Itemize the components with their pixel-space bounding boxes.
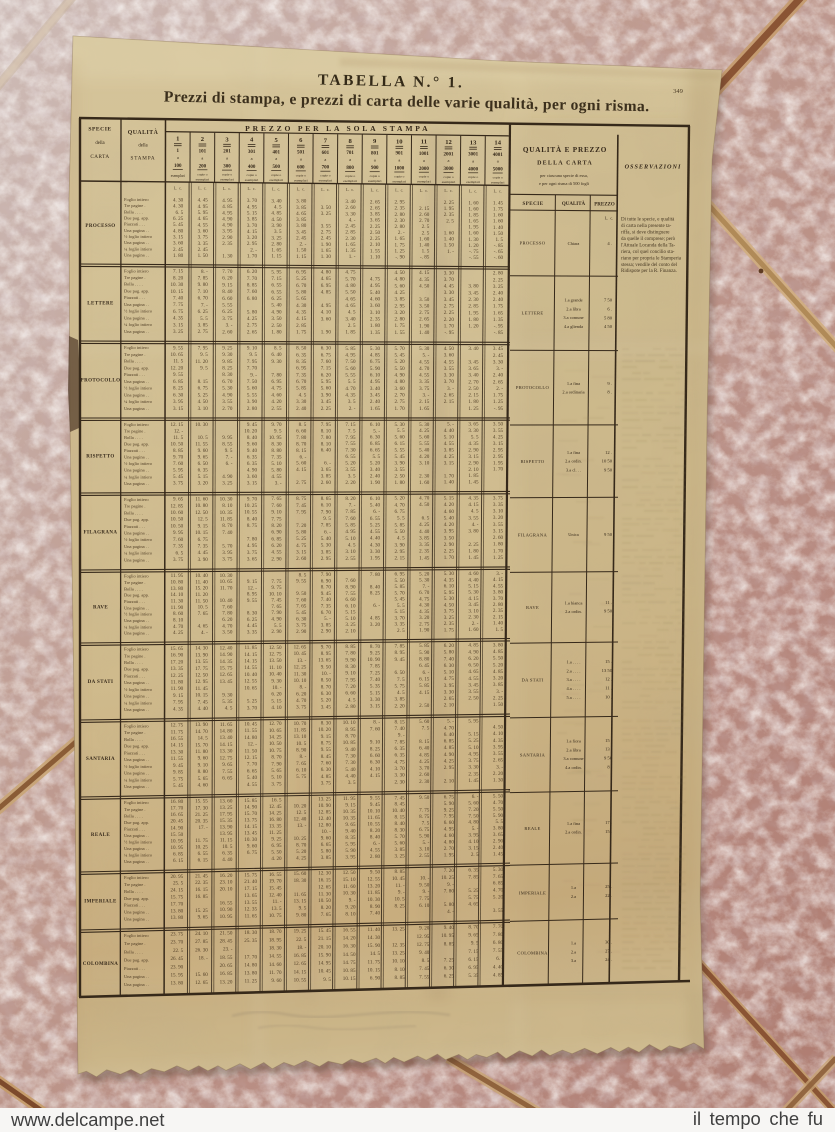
svg-text:8. 15: 8. 15 <box>296 448 307 454</box>
svg-text:6. 90: 6. 90 <box>271 530 282 536</box>
svg-text:4. 25: 4. 25 <box>419 428 430 434</box>
svg-text:4. -: 4. - <box>447 909 454 915</box>
svg-text:5. 55: 5. 55 <box>222 303 233 309</box>
svg-text:4. 80: 4. 80 <box>395 277 406 283</box>
svg-text:4. 50: 4. 50 <box>444 602 455 608</box>
svg-text:13. 80: 13. 80 <box>170 908 183 914</box>
svg-text:2. 55: 2. 55 <box>345 556 356 562</box>
svg-text:9. 20: 9. 20 <box>419 926 430 932</box>
svg-text:15. 75: 15. 75 <box>170 895 183 901</box>
svg-text:16. 15: 16. 15 <box>318 878 331 884</box>
svg-text:3. 10: 3. 10 <box>419 846 430 852</box>
svg-text:3. -: 3. - <box>423 393 430 399</box>
svg-text:3. 80: 3. 80 <box>468 284 479 290</box>
svg-text:1. 50: 1. 50 <box>444 243 455 249</box>
svg-text:5. 60: 5. 60 <box>419 435 430 441</box>
svg-text:7. 80: 7. 80 <box>321 435 332 441</box>
svg-text:6. 75: 6. 75 <box>395 509 406 515</box>
svg-text:4. 85: 4. 85 <box>321 290 332 296</box>
svg-text:10. 40: 10. 40 <box>195 573 208 579</box>
svg-text:5. 80: 5. 80 <box>444 650 455 656</box>
svg-text:a: a <box>398 158 400 163</box>
svg-text:14. 60: 14. 60 <box>269 962 282 968</box>
svg-text:3. 15: 3. 15 <box>493 441 504 447</box>
svg-text:3. 10: 3. 10 <box>345 549 356 555</box>
svg-text:4. 70: 4. 70 <box>173 624 184 630</box>
svg-text:14. 10: 14. 10 <box>170 592 183 598</box>
svg-text:Due pag. app.: Due pag. app. <box>124 289 149 294</box>
svg-text:PREZZO: PREZZO <box>594 202 615 207</box>
svg-text:4. 80: 4. 80 <box>468 820 479 826</box>
svg-text:5. 65: 5. 65 <box>296 296 307 302</box>
svg-text:22. 5: 22. 5 <box>296 937 307 943</box>
svg-text:4. 90: 4. 90 <box>468 649 479 655</box>
svg-text:5. 40: 5. 40 <box>321 536 332 542</box>
svg-text:600: 600 <box>297 165 305 170</box>
svg-text:3.a comune: 3.a comune <box>563 315 583 320</box>
svg-text:5. 40: 5. 40 <box>444 515 455 521</box>
svg-text:4. 40: 4. 40 <box>345 773 356 779</box>
svg-text:1. 80: 1. 80 <box>468 399 479 405</box>
svg-text:Bolla . . . .: Bolla . . . . <box>124 359 143 364</box>
svg-text:1. 80: 1. 80 <box>468 548 479 554</box>
svg-text:5. 10: 5. 10 <box>271 775 282 781</box>
svg-text:6. 65: 6. 65 <box>222 776 233 782</box>
svg-text:Una pagina . .: Una pagina . . <box>124 558 149 563</box>
svg-text:5. 60: 5. 60 <box>321 386 332 392</box>
svg-text:10. 50: 10. 50 <box>170 524 183 530</box>
svg-text:½ foglio intiero: ½ foglio intiero <box>124 764 153 769</box>
svg-text:7. 40: 7. 40 <box>321 597 332 603</box>
svg-text:copie o: copie o <box>320 174 330 178</box>
svg-text:2. 25: 2. 25 <box>444 310 455 316</box>
svg-text:3. 55: 3. 55 <box>321 223 332 229</box>
svg-text:2. 5: 2. 5 <box>422 224 430 230</box>
svg-text:2. 55: 2. 55 <box>271 406 282 412</box>
svg-text:6. 55: 6. 55 <box>198 851 209 857</box>
svg-text:Una pagina . .: Una pagina . . <box>124 253 149 258</box>
svg-text:Due pag. app.: Due pag. app. <box>124 593 149 598</box>
svg-text:12. 35: 12. 35 <box>244 907 257 913</box>
svg-text:10. 10: 10. 10 <box>367 809 380 815</box>
svg-text:9. 40: 9. 40 <box>345 829 356 835</box>
svg-text:11. -: 11. - <box>396 883 405 889</box>
svg-text:5. 60: 5. 60 <box>395 283 406 289</box>
svg-text:1. 80: 1. 80 <box>370 323 381 329</box>
svg-text:4. 40: 4. 40 <box>419 529 430 535</box>
svg-text:4. 95: 4. 95 <box>444 827 455 833</box>
svg-text:16. 55: 16. 55 <box>269 872 282 878</box>
svg-text:-. 85: -. 85 <box>420 255 430 261</box>
svg-text:3. 30: 3. 30 <box>444 270 455 276</box>
svg-text:7. 35: 7. 35 <box>321 604 332 610</box>
svg-text:12. 15: 12. 15 <box>170 422 183 428</box>
svg-text:3. 70: 3. 70 <box>395 766 406 772</box>
svg-text:3. 80: 3. 80 <box>468 529 479 535</box>
svg-text:3. 5: 3. 5 <box>274 229 282 235</box>
svg-text:esemplari: esemplari <box>319 179 333 183</box>
svg-text:Due pag. app.: Due pag. app. <box>124 667 149 672</box>
svg-text:3. 15: 3. 15 <box>468 845 479 851</box>
svg-text:8 .: 8 . <box>607 390 612 395</box>
svg-text:Una pagina . .: Una pagina . . <box>124 228 149 233</box>
svg-text:il tempo che fu: il tempo che fu <box>693 1108 823 1129</box>
svg-text:14. 75: 14. 75 <box>343 960 356 966</box>
svg-text:1. 95: 1. 95 <box>468 225 479 231</box>
svg-text:3. 70: 3. 70 <box>444 277 455 283</box>
svg-text:1. 35: 1. 35 <box>370 330 381 336</box>
svg-text:5. 45: 5. 45 <box>296 610 307 616</box>
svg-text:5. 55: 5. 55 <box>395 448 406 454</box>
svg-text:4. 75: 4. 75 <box>345 270 356 276</box>
svg-text:15. 90: 15. 90 <box>367 943 380 949</box>
svg-text:4. 75: 4. 75 <box>271 386 282 392</box>
svg-text:1. 45: 1. 45 <box>493 201 504 207</box>
svg-text:6. -: 6. - <box>373 603 380 609</box>
svg-text:5. 15: 5. 15 <box>444 496 455 502</box>
svg-text:10. 35: 10. 35 <box>220 510 233 516</box>
svg-text:1000: 1000 <box>394 167 405 172</box>
svg-text:9. 50: 9. 50 <box>296 591 307 597</box>
svg-text:2. 90: 2. 90 <box>444 542 455 548</box>
svg-text:8. 70: 8. 70 <box>468 925 479 931</box>
svg-text:15. 60: 15. 60 <box>195 972 208 978</box>
svg-text:11. 70: 11. 70 <box>220 586 233 592</box>
svg-text:8. 15: 8. 15 <box>198 379 209 385</box>
svg-text:7. 85: 7. 85 <box>468 874 479 880</box>
svg-text:1. 95: 1. 95 <box>444 852 455 858</box>
svg-text:6. 30: 6. 30 <box>321 346 332 352</box>
svg-text:4. 65: 4. 65 <box>468 669 479 675</box>
svg-text:9. 30: 9. 30 <box>222 692 233 698</box>
svg-text:10. 20: 10. 20 <box>244 428 257 434</box>
svg-text:2. 40: 2. 40 <box>370 399 381 405</box>
svg-text:3. 70: 3. 70 <box>395 615 406 621</box>
svg-text:701: 701 <box>346 151 354 156</box>
svg-text:1. 30: 1. 30 <box>321 254 332 260</box>
svg-text:5. 50: 5. 50 <box>345 290 356 296</box>
svg-text:15. 45: 15. 45 <box>269 886 282 892</box>
svg-text:11. -: 11. - <box>272 899 281 905</box>
svg-text:6. 60: 6. 60 <box>296 428 307 434</box>
svg-text:4. 20: 4. 20 <box>444 522 455 528</box>
svg-text:13. 80: 13. 80 <box>170 915 183 921</box>
svg-text:2. 10: 2. 10 <box>345 628 356 634</box>
svg-text:-. 75: -. 75 <box>469 249 479 255</box>
svg-text:9. 5: 9. 5 <box>200 352 208 358</box>
svg-text:9. 60: 9. 60 <box>198 756 209 762</box>
svg-text:14. 35: 14. 35 <box>220 659 233 665</box>
svg-text:Tre pagine .: Tre pagine . <box>124 882 145 887</box>
svg-text:1. 75: 1. 75 <box>493 393 504 399</box>
svg-text:2. 95: 2. 95 <box>395 303 406 309</box>
svg-text:3. 45: 3. 45 <box>321 704 332 710</box>
svg-text:17. 15: 17. 15 <box>244 886 257 892</box>
svg-text:1. 45: 1. 45 <box>468 480 479 486</box>
svg-text:5. -: 5. - <box>423 353 430 359</box>
svg-text:9. 65: 9. 65 <box>198 455 209 461</box>
svg-text:8. 25: 8. 25 <box>370 591 381 597</box>
svg-text:5. 30: 5. 30 <box>419 578 430 584</box>
svg-text:4. 85: 4. 85 <box>370 616 381 622</box>
svg-text:5. 20: 5. 20 <box>395 359 406 365</box>
svg-text:10. -: 10. - <box>420 876 430 882</box>
svg-text:2. 85: 2. 85 <box>345 230 356 236</box>
svg-text:10. -: 10. - <box>322 829 332 835</box>
svg-text:5. 85: 5. 85 <box>419 683 430 689</box>
svg-text:1. 5: 1. 5 <box>422 249 430 255</box>
svg-text:11. 85: 11. 85 <box>294 728 307 734</box>
svg-text:9. 25: 9. 25 <box>222 345 233 351</box>
svg-text:Due pag. app.: Due pag. app. <box>124 820 149 825</box>
svg-text:5. 45: 5. 45 <box>395 597 406 603</box>
svg-text:301: 301 <box>248 150 256 155</box>
svg-text:4. 90: 4. 90 <box>271 309 282 315</box>
svg-text:esemplari: esemplari <box>417 180 431 184</box>
svg-text:3. 20: 3. 20 <box>493 676 504 682</box>
svg-text:¼ foglio intiero: ¼ foglio intiero <box>124 624 153 629</box>
svg-text:Tre pagine .: Tre pagine . <box>124 429 145 434</box>
svg-text:7. 55: 7. 55 <box>419 974 430 980</box>
svg-text:3. 20: 3. 20 <box>493 515 504 521</box>
svg-text:3. 80: 3. 80 <box>296 223 307 229</box>
svg-text:OSSERVAZIONI: OSSERVAZIONI <box>625 163 682 170</box>
svg-text:2. 80: 2. 80 <box>271 241 282 247</box>
svg-text:9 .: 9 . <box>607 381 612 386</box>
svg-text:3. 50: 3. 50 <box>321 205 332 211</box>
svg-text:Tre pagine .: Tre pagine . <box>124 807 145 812</box>
svg-text:2. 75: 2. 75 <box>321 230 332 236</box>
svg-text:copie o: copie o <box>246 173 256 177</box>
svg-text:10. 30: 10. 30 <box>343 891 356 897</box>
svg-text:1. 60: 1. 60 <box>468 627 479 633</box>
svg-text:10. 35: 10. 35 <box>343 809 356 815</box>
svg-text:14. 30: 14. 30 <box>367 935 380 941</box>
svg-text:3. 25: 3. 25 <box>395 853 406 859</box>
svg-text:22. 35: 22. 35 <box>195 880 208 886</box>
svg-text:7. 35: 7. 35 <box>271 454 282 460</box>
svg-text:13. 40: 13. 40 <box>220 735 233 741</box>
svg-text:1. 50: 1. 50 <box>493 702 504 708</box>
svg-text:4. 70: 4. 70 <box>395 502 406 508</box>
svg-text:8. 95: 8. 95 <box>395 650 406 656</box>
svg-text:4. 20: 4. 20 <box>419 454 430 460</box>
svg-text:9 50: 9 50 <box>604 467 613 472</box>
svg-text:9. 5: 9. 5 <box>323 516 331 522</box>
svg-text:16. 80: 16. 80 <box>269 817 282 823</box>
svg-text:2. 65: 2. 65 <box>247 329 258 335</box>
svg-text:3. 10: 3. 10 <box>468 608 479 614</box>
svg-text:2. 70: 2. 70 <box>222 406 233 412</box>
svg-text:4. 35: 4. 35 <box>419 609 430 615</box>
svg-text:5. 25: 5. 25 <box>296 536 307 542</box>
svg-text:24. 10: 24. 10 <box>195 931 208 937</box>
svg-text:2. 45: 2. 45 <box>345 224 356 230</box>
svg-text:8. 70: 8. 70 <box>321 684 332 690</box>
svg-text:a: a <box>497 159 499 164</box>
svg-text:900: 900 <box>371 166 379 171</box>
svg-text:19. 70: 19. 70 <box>269 879 282 885</box>
svg-text:1. 70: 1. 70 <box>444 323 455 329</box>
svg-text:½ foglio intiero: ½ foglio intiero <box>124 537 153 542</box>
svg-text:8. 60: 8. 60 <box>173 611 184 617</box>
svg-text:1. 55: 1. 55 <box>370 248 381 254</box>
svg-text:SANTARIA: SANTARIA <box>520 752 546 757</box>
svg-text:Una pagina . .: Una pagina . . <box>124 784 149 789</box>
svg-text:12. 75: 12. 75 <box>417 942 430 948</box>
svg-text:Ridispote per la R. Finanza.: Ridispote per la R. Finanza. <box>621 269 677 274</box>
svg-text:7. 60: 7. 60 <box>321 359 332 365</box>
svg-text:6. 15: 6. 15 <box>395 441 406 447</box>
svg-text:Una pagina . .: Una pagina . . <box>124 455 149 460</box>
svg-text:2. 30: 2. 30 <box>468 615 479 621</box>
svg-text:4. 45: 4. 45 <box>444 284 455 290</box>
svg-text:12. 5: 12. 5 <box>198 517 209 523</box>
svg-text:3. 25: 3. 25 <box>173 329 184 335</box>
svg-text:11. 50: 11. 50 <box>195 598 208 604</box>
svg-text:7. 85: 7. 85 <box>321 523 332 529</box>
svg-text:11. 75: 11. 75 <box>195 838 208 844</box>
svg-text:9. 90: 9. 90 <box>345 657 356 663</box>
svg-text:3. 10: 3. 10 <box>198 406 209 412</box>
svg-text:1.a: 1.a <box>571 941 576 946</box>
svg-text:4. 80: 4. 80 <box>173 228 184 234</box>
svg-text:2. 30: 2. 30 <box>468 297 479 303</box>
svg-text:2. 5: 2. 5 <box>397 628 405 634</box>
svg-text:8. 20: 8. 20 <box>370 828 381 834</box>
svg-text:4. 10: 4. 10 <box>321 310 332 316</box>
svg-text:7. 5: 7. 5 <box>397 677 405 683</box>
svg-text:5. -: 5. - <box>447 422 454 428</box>
svg-text:8. 95: 8. 95 <box>321 651 332 657</box>
svg-text:4. 20: 4. 20 <box>271 856 282 862</box>
svg-text:Di tutte le specie, e qualità: Di tutte le specie, e qualità <box>621 218 675 223</box>
svg-text:¼ foglio intiero: ¼ foglio intiero <box>124 399 153 404</box>
svg-text:16. 85: 16. 85 <box>220 971 233 977</box>
svg-text:4. 80: 4. 80 <box>444 840 455 846</box>
svg-text:Due pag. app.: Due pag. app. <box>124 744 149 749</box>
svg-text:13. 25: 13. 25 <box>220 805 233 811</box>
svg-text:6. -: 6. - <box>300 454 307 460</box>
svg-text:10. 45: 10. 45 <box>294 651 307 657</box>
svg-text:3. 30: 3. 30 <box>444 373 455 379</box>
svg-text:½ foglio intiero: ½ foglio intiero <box>124 461 153 466</box>
svg-text:6. 30: 6. 30 <box>173 392 184 398</box>
svg-text:3. -: 3. - <box>496 764 503 770</box>
svg-text:5. 20: 5. 20 <box>395 496 406 502</box>
svg-text:12. 80: 12. 80 <box>318 823 331 829</box>
svg-text:10. 50: 10. 50 <box>269 741 282 747</box>
svg-text:Una pagina . .: Una pagina . . <box>124 974 149 979</box>
svg-text:3. 45: 3. 45 <box>296 229 307 235</box>
svg-text:10. 30: 10. 30 <box>170 282 183 288</box>
svg-text:a: a <box>349 157 351 162</box>
svg-text:9. 95: 9. 95 <box>222 435 233 441</box>
svg-text:8. 85: 8. 85 <box>247 283 258 289</box>
svg-text:8. 30: 8. 30 <box>321 720 332 726</box>
svg-text:8. 45: 8. 45 <box>395 802 406 808</box>
svg-text:4. 50: 4. 50 <box>395 270 406 276</box>
svg-text:13. -: 13. - <box>297 823 307 829</box>
svg-text:9. 45: 9. 45 <box>247 422 258 428</box>
svg-text:9. 55: 9. 55 <box>173 372 184 378</box>
svg-text:Foglio intiero: Foglio intiero <box>124 723 149 728</box>
svg-text:3. 95: 3. 95 <box>222 550 233 556</box>
svg-text:6. 10: 6. 10 <box>419 903 430 909</box>
svg-text:2. 50: 2. 50 <box>271 323 282 329</box>
svg-text:3. 30: 3. 30 <box>468 428 479 434</box>
svg-text:Piazzati . . .: Piazzati . . . <box>124 295 145 300</box>
svg-text:2. 30: 2. 30 <box>345 236 356 242</box>
svg-text:L. c.: L. c. <box>395 188 403 193</box>
svg-text:2. 20: 2. 20 <box>345 480 356 486</box>
svg-text:10. 90: 10. 90 <box>220 907 233 913</box>
svg-text:L. c.: L. c. <box>223 186 231 191</box>
svg-text:3. -: 3. - <box>226 323 233 329</box>
svg-text:13. 10: 13. 10 <box>294 734 307 740</box>
svg-text:12. 50: 12. 50 <box>195 510 208 516</box>
svg-text:copie o: copie o <box>370 174 380 178</box>
svg-text:1.a . . . .: 1.a . . . . <box>566 660 580 665</box>
svg-text:3. 95: 3. 95 <box>493 745 504 751</box>
svg-text:21. 15: 21. 15 <box>318 936 331 942</box>
svg-text:1. 95: 1. 95 <box>370 556 381 562</box>
svg-text:9. 65: 9. 65 <box>345 822 356 828</box>
svg-text:6. 20: 6. 20 <box>271 543 282 549</box>
svg-text:2. 40: 2. 40 <box>493 297 504 303</box>
svg-text:2. 50: 2. 50 <box>419 703 430 709</box>
svg-text:4. 55: 4. 55 <box>271 550 282 556</box>
svg-text:22. 5: 22. 5 <box>173 948 184 954</box>
svg-text:10. 15: 10. 15 <box>170 289 183 295</box>
svg-text:9. 70: 9. 70 <box>271 422 282 428</box>
svg-text:601: 601 <box>322 151 330 156</box>
svg-text:10. 45: 10. 45 <box>318 969 331 975</box>
svg-text:3. 85: 3. 85 <box>395 297 406 303</box>
svg-text:½ foglio intiero: ½ foglio intiero <box>124 386 153 391</box>
svg-text:di carta nella presente ta-: di carta nella presente ta- <box>621 224 672 229</box>
svg-text:Una pagina . .: Una pagina . . <box>124 406 149 411</box>
svg-text:10. 40: 10. 40 <box>269 672 282 678</box>
svg-text:901: 901 <box>396 152 404 157</box>
svg-text:8. 25: 8. 25 <box>370 746 381 752</box>
svg-text:4. 60: 4. 60 <box>444 833 455 839</box>
svg-text:Piazzati . . .: Piazzati . . . <box>124 750 145 755</box>
svg-text:1. 80: 1. 80 <box>493 542 504 548</box>
svg-text:4. 55: 4. 55 <box>419 373 430 379</box>
svg-text:1. 90: 1. 90 <box>321 330 332 336</box>
svg-text:16. 5: 16. 5 <box>271 797 282 803</box>
svg-text:5. 15: 5. 15 <box>468 584 479 590</box>
svg-text:1. 45: 1. 45 <box>419 555 430 561</box>
svg-text:15. 85: 15. 85 <box>244 798 257 804</box>
svg-text:9. 55: 9. 55 <box>321 747 332 753</box>
svg-text:4. 35: 4. 35 <box>493 738 504 744</box>
svg-text:11. 55: 11. 55 <box>171 756 184 762</box>
svg-text:7. 60: 7. 60 <box>247 289 258 295</box>
svg-text:9 50: 9 50 <box>604 756 613 761</box>
svg-text:5. 45: 5. 45 <box>173 783 184 789</box>
svg-text:9. 50: 9. 50 <box>370 870 381 876</box>
svg-text:a: a <box>275 156 277 161</box>
svg-text:Tre pagine .: Tre pagine . <box>124 275 145 280</box>
svg-text:9. 45: 9. 45 <box>370 802 381 808</box>
svg-text:6. 70: 6. 70 <box>419 590 430 596</box>
svg-text:da quelle il comprese; però: da quelle il comprese; però <box>621 237 676 242</box>
svg-text:6. 75: 6. 75 <box>444 794 455 800</box>
svg-text:5. 55: 5. 55 <box>419 441 430 447</box>
svg-text:5. 95: 5. 95 <box>444 590 455 596</box>
